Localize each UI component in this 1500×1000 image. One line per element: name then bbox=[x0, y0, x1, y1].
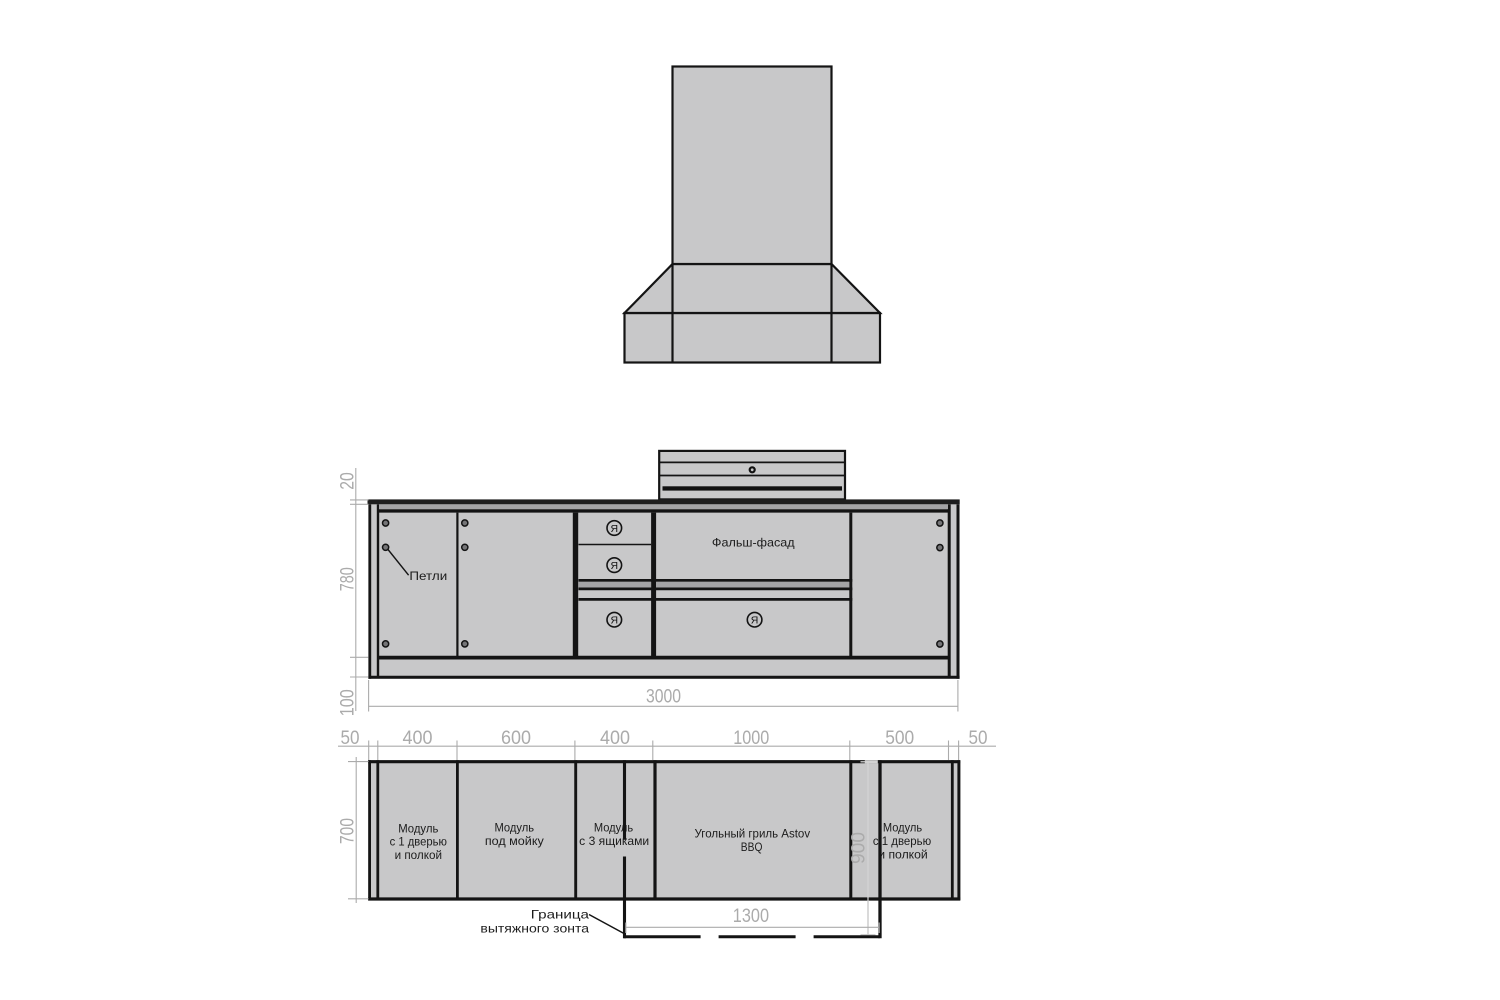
svg-text:1300: 1300 bbox=[733, 906, 769, 927]
svg-text:вытяжного зонта: вытяжного зонта bbox=[480, 922, 589, 936]
svg-text:400: 400 bbox=[600, 728, 630, 749]
svg-text:и полкой: и полкой bbox=[395, 848, 442, 862]
svg-text:Угольный гриль Astov: Угольный гриль Astov bbox=[695, 826, 811, 840]
svg-text:Модуль: Модуль bbox=[883, 821, 922, 835]
svg-text:Я: Я bbox=[751, 615, 759, 627]
svg-text:900: 900 bbox=[849, 832, 870, 864]
svg-text:400: 400 bbox=[403, 728, 433, 749]
svg-text:3000: 3000 bbox=[646, 687, 681, 708]
svg-text:780: 780 bbox=[338, 567, 359, 591]
svg-text:Модуль: Модуль bbox=[594, 821, 633, 835]
svg-text:50: 50 bbox=[341, 728, 360, 749]
svg-text:500: 500 bbox=[885, 728, 914, 749]
svg-text:Модуль: Модуль bbox=[495, 821, 535, 835]
svg-text:Я: Я bbox=[611, 560, 619, 572]
svg-text:100: 100 bbox=[338, 689, 359, 716]
svg-text:с 1 дверью: с 1 дверью bbox=[390, 835, 447, 849]
svg-text:600: 600 bbox=[501, 728, 531, 749]
svg-text:под мойку: под мойку bbox=[485, 834, 544, 848]
svg-text:Я: Я bbox=[611, 615, 619, 627]
svg-text:700: 700 bbox=[338, 818, 359, 844]
svg-text:50: 50 bbox=[969, 728, 988, 749]
svg-text:Граница: Граница bbox=[531, 908, 590, 922]
svg-text:Петли: Петли bbox=[409, 569, 447, 583]
svg-text:1000: 1000 bbox=[733, 728, 769, 749]
svg-text:20: 20 bbox=[338, 472, 359, 490]
svg-text:Фальш-фасад: Фальш-фасад bbox=[712, 535, 795, 549]
svg-text:с 3 ящиками: с 3 ящиками bbox=[579, 834, 649, 848]
svg-text:Я: Я bbox=[611, 523, 619, 535]
svg-text:BBQ: BBQ bbox=[741, 840, 763, 854]
svg-text:Модуль: Модуль bbox=[398, 821, 438, 835]
svg-text:и полкой: и полкой bbox=[878, 848, 928, 862]
